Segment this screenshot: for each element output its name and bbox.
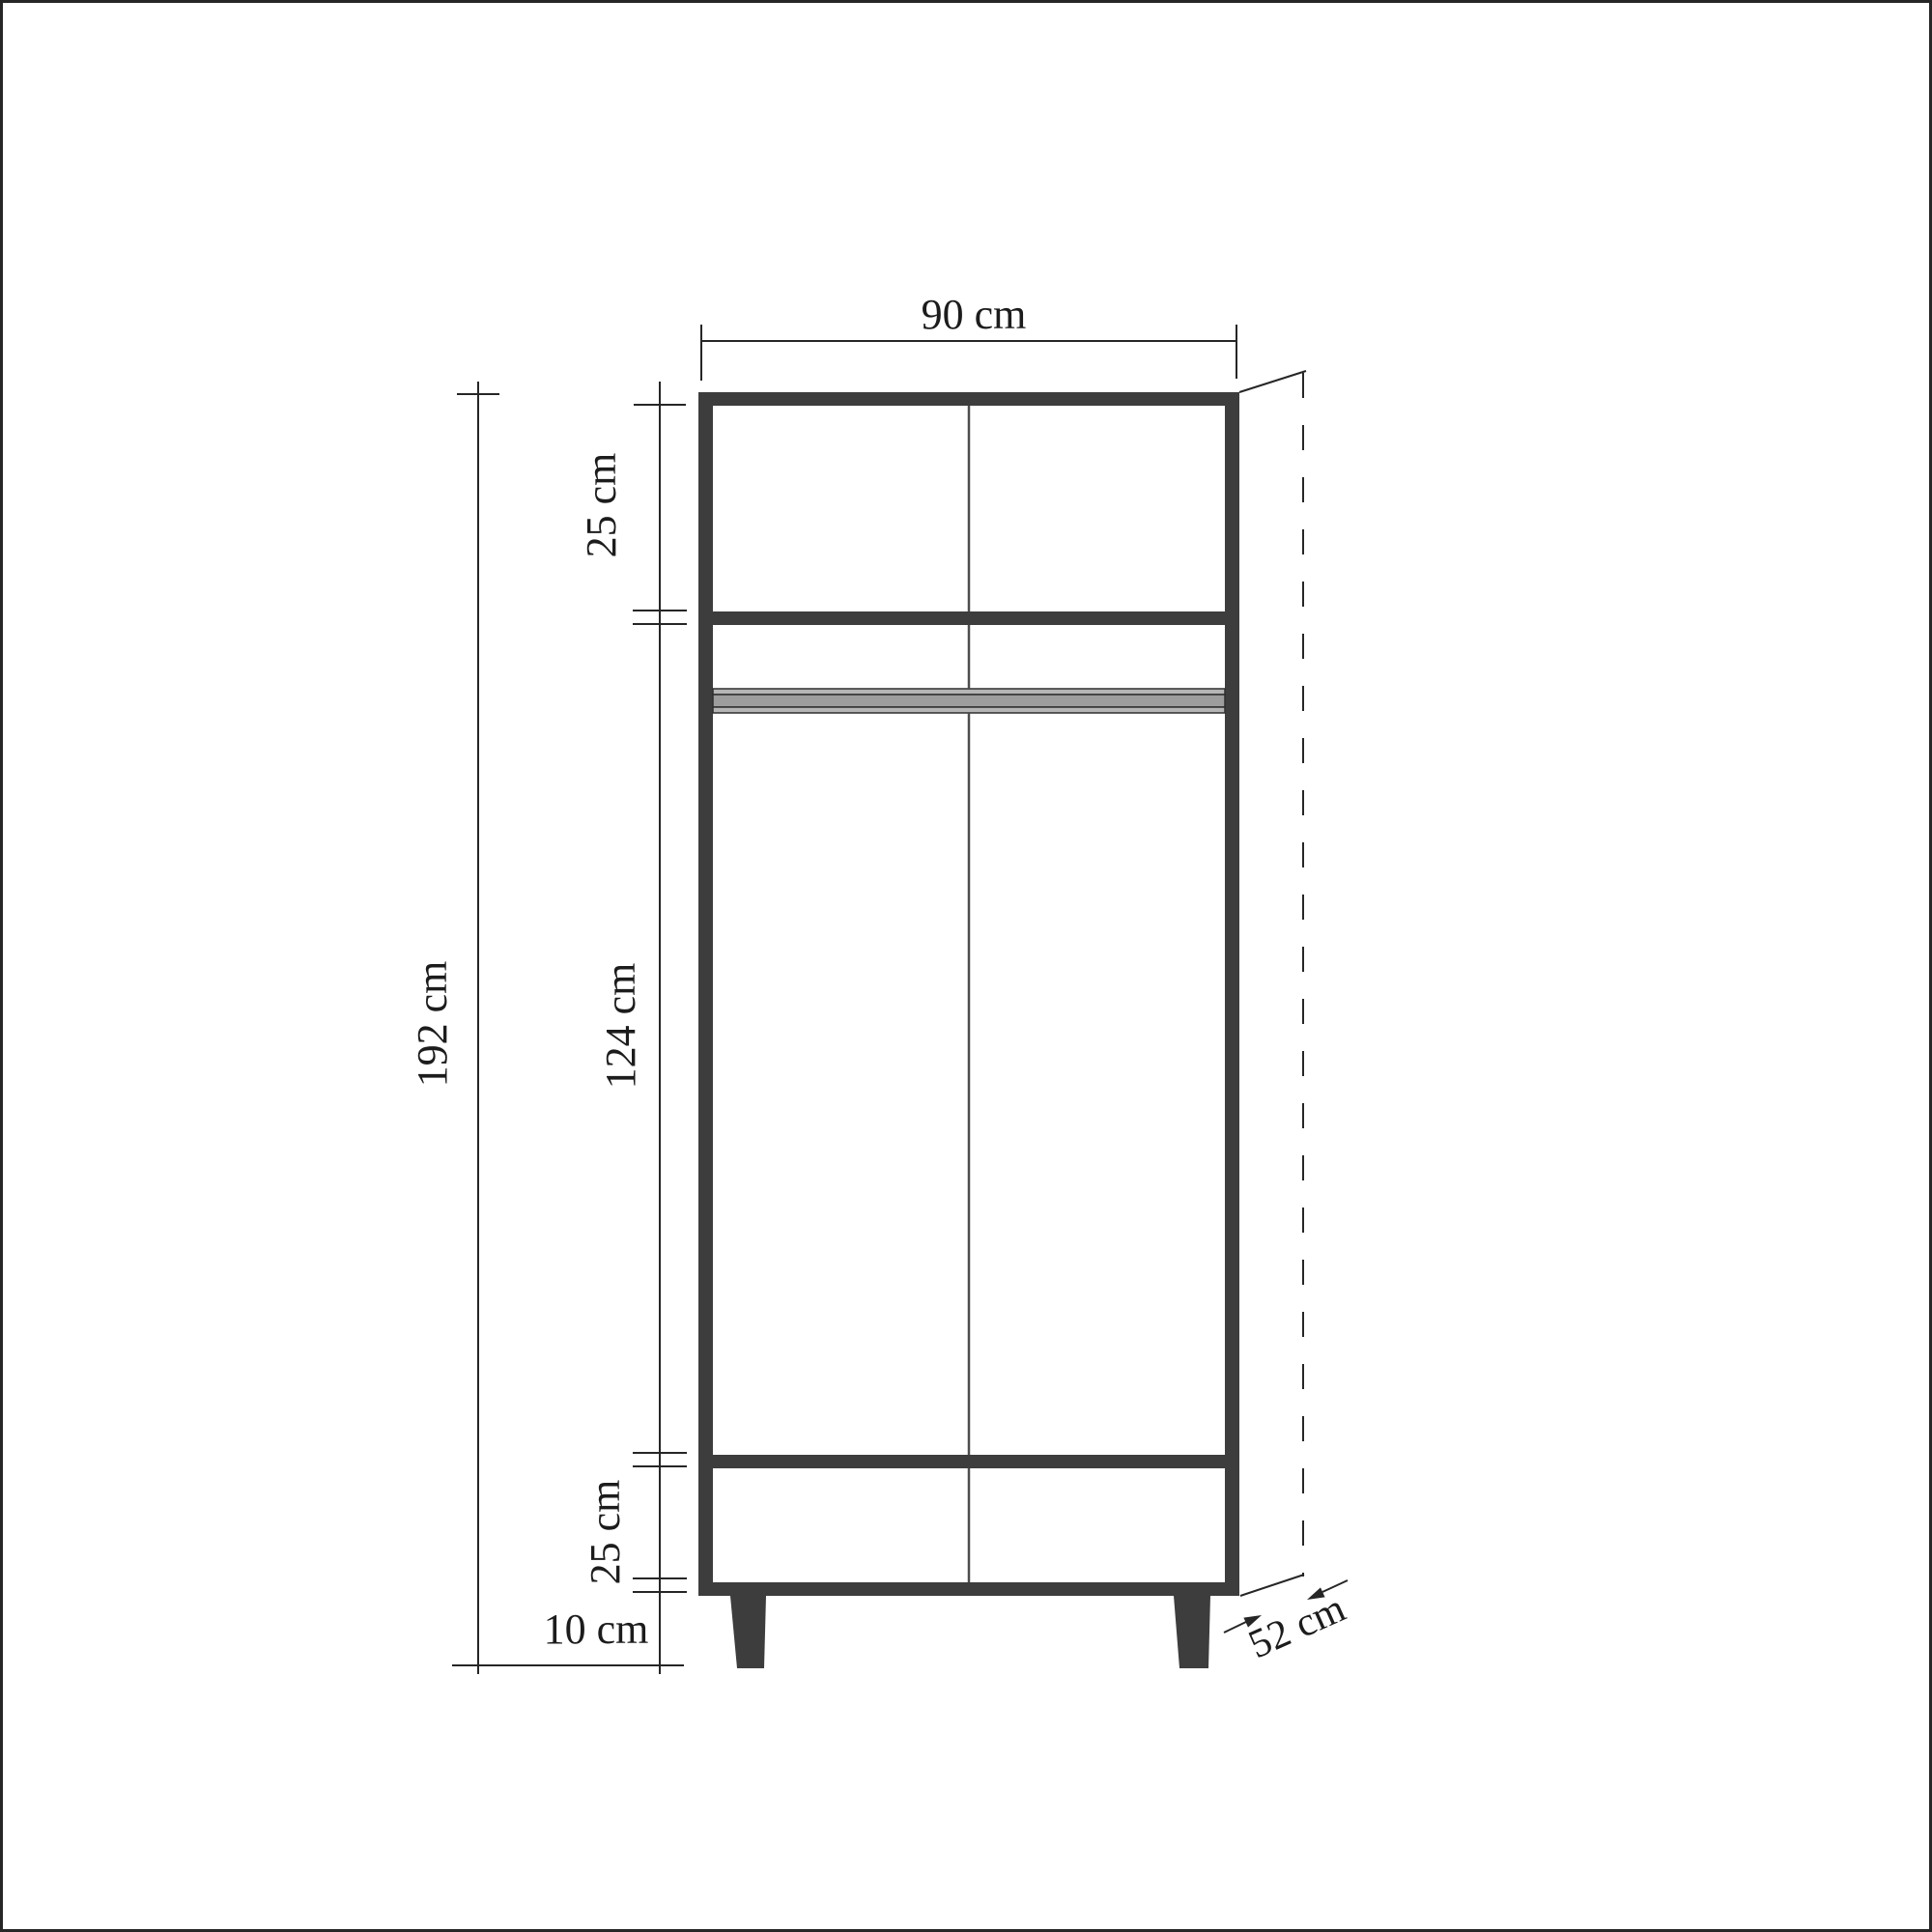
- hanging-rod: [713, 689, 1225, 713]
- depth-diagonal-top: [1239, 371, 1306, 392]
- width-dimension: 90 cm: [701, 291, 1236, 381]
- drawing-canvas: 52 cm 90 cm 192 cm 25 cm 124 cm 25 cm 10…: [0, 0, 1932, 1932]
- leg-height-dimension: 10 cm: [452, 1605, 684, 1665]
- hanging-rod-bottom-strip: [713, 707, 1225, 713]
- wardrobe-top-panel: [698, 392, 1239, 406]
- depth-dimension-label: 52 cm: [1242, 1586, 1352, 1667]
- wardrobe-top-shelf-divider: [698, 611, 1239, 625]
- width-dimension-label: 90 cm: [922, 291, 1027, 338]
- bottom-section-dimension-label: 25 cm: [582, 1480, 629, 1585]
- wardrobe-right-wall: [1225, 392, 1239, 1596]
- top-section-dimension-label: 25 cm: [578, 453, 625, 558]
- wardrobe-bottom-shelf-divider: [698, 1455, 1239, 1468]
- wardrobe-left-wall: [698, 392, 713, 1596]
- wardrobe-left-leg: [730, 1596, 766, 1668]
- wardrobe-dimension-diagram: 52 cm 90 cm 192 cm 25 cm 124 cm 25 cm 10…: [0, 0, 1932, 1932]
- leg-height-dimension-label: 10 cm: [544, 1605, 649, 1653]
- total-height-dimension: 192 cm: [409, 382, 499, 1674]
- wardrobe-bottom-panel: [698, 1582, 1239, 1596]
- depth-diagonal-bottom: [1240, 1575, 1304, 1596]
- total-height-dimension-label: 192 cm: [409, 961, 456, 1088]
- hanging-rod-bar: [713, 695, 1225, 707]
- hanging-rod-top-strip: [713, 689, 1225, 695]
- section-dimensions: 25 cm 124 cm 25 cm: [578, 382, 687, 1674]
- middle-section-dimension-label: 124 cm: [597, 963, 644, 1090]
- wardrobe-right-leg: [1174, 1596, 1210, 1668]
- wardrobe-body: [698, 392, 1239, 1668]
- depth-projection: 52 cm: [1224, 371, 1352, 1667]
